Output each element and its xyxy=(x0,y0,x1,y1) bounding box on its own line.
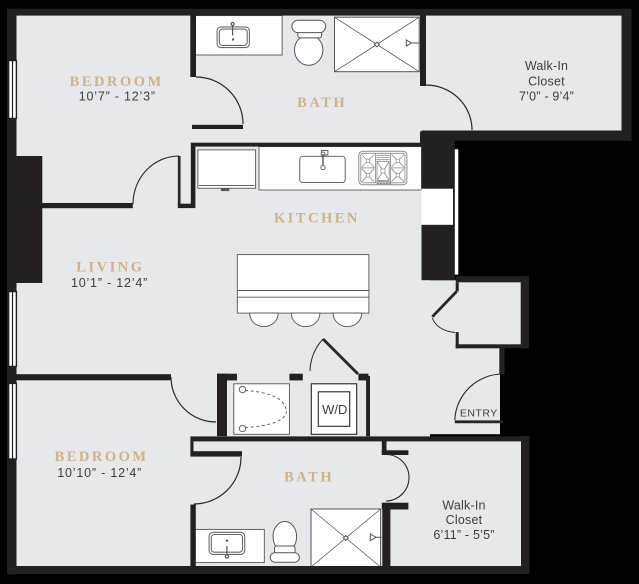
svg-text:Walk-In: Walk-In xyxy=(525,59,568,73)
svg-text:BEDROOM: BEDROOM xyxy=(70,74,164,90)
svg-text:10’1” - 12’4”: 10’1” - 12’4” xyxy=(71,276,148,290)
svg-text:BATH: BATH xyxy=(284,470,334,486)
svg-text:W/D: W/D xyxy=(322,402,347,417)
svg-text:KITCHEN: KITCHEN xyxy=(274,211,360,227)
svg-text:Closet: Closet xyxy=(446,513,483,527)
svg-text:ENTRY: ENTRY xyxy=(460,408,498,420)
svg-text:Walk-In: Walk-In xyxy=(442,499,485,513)
svg-text:BEDROOM: BEDROOM xyxy=(55,449,149,465)
svg-text:10’7” - 12’3”: 10’7” - 12’3” xyxy=(79,90,156,104)
svg-text:Closet: Closet xyxy=(528,75,565,89)
svg-text:BATH: BATH xyxy=(297,95,347,111)
svg-text:10’10” - 12’4”: 10’10” - 12’4” xyxy=(57,466,142,480)
svg-text:6’11” - 5’5”: 6’11” - 5’5” xyxy=(433,528,494,542)
svg-text:LIVING: LIVING xyxy=(76,260,144,276)
svg-text:7’0” - 9’4”: 7’0” - 9’4” xyxy=(519,90,574,104)
